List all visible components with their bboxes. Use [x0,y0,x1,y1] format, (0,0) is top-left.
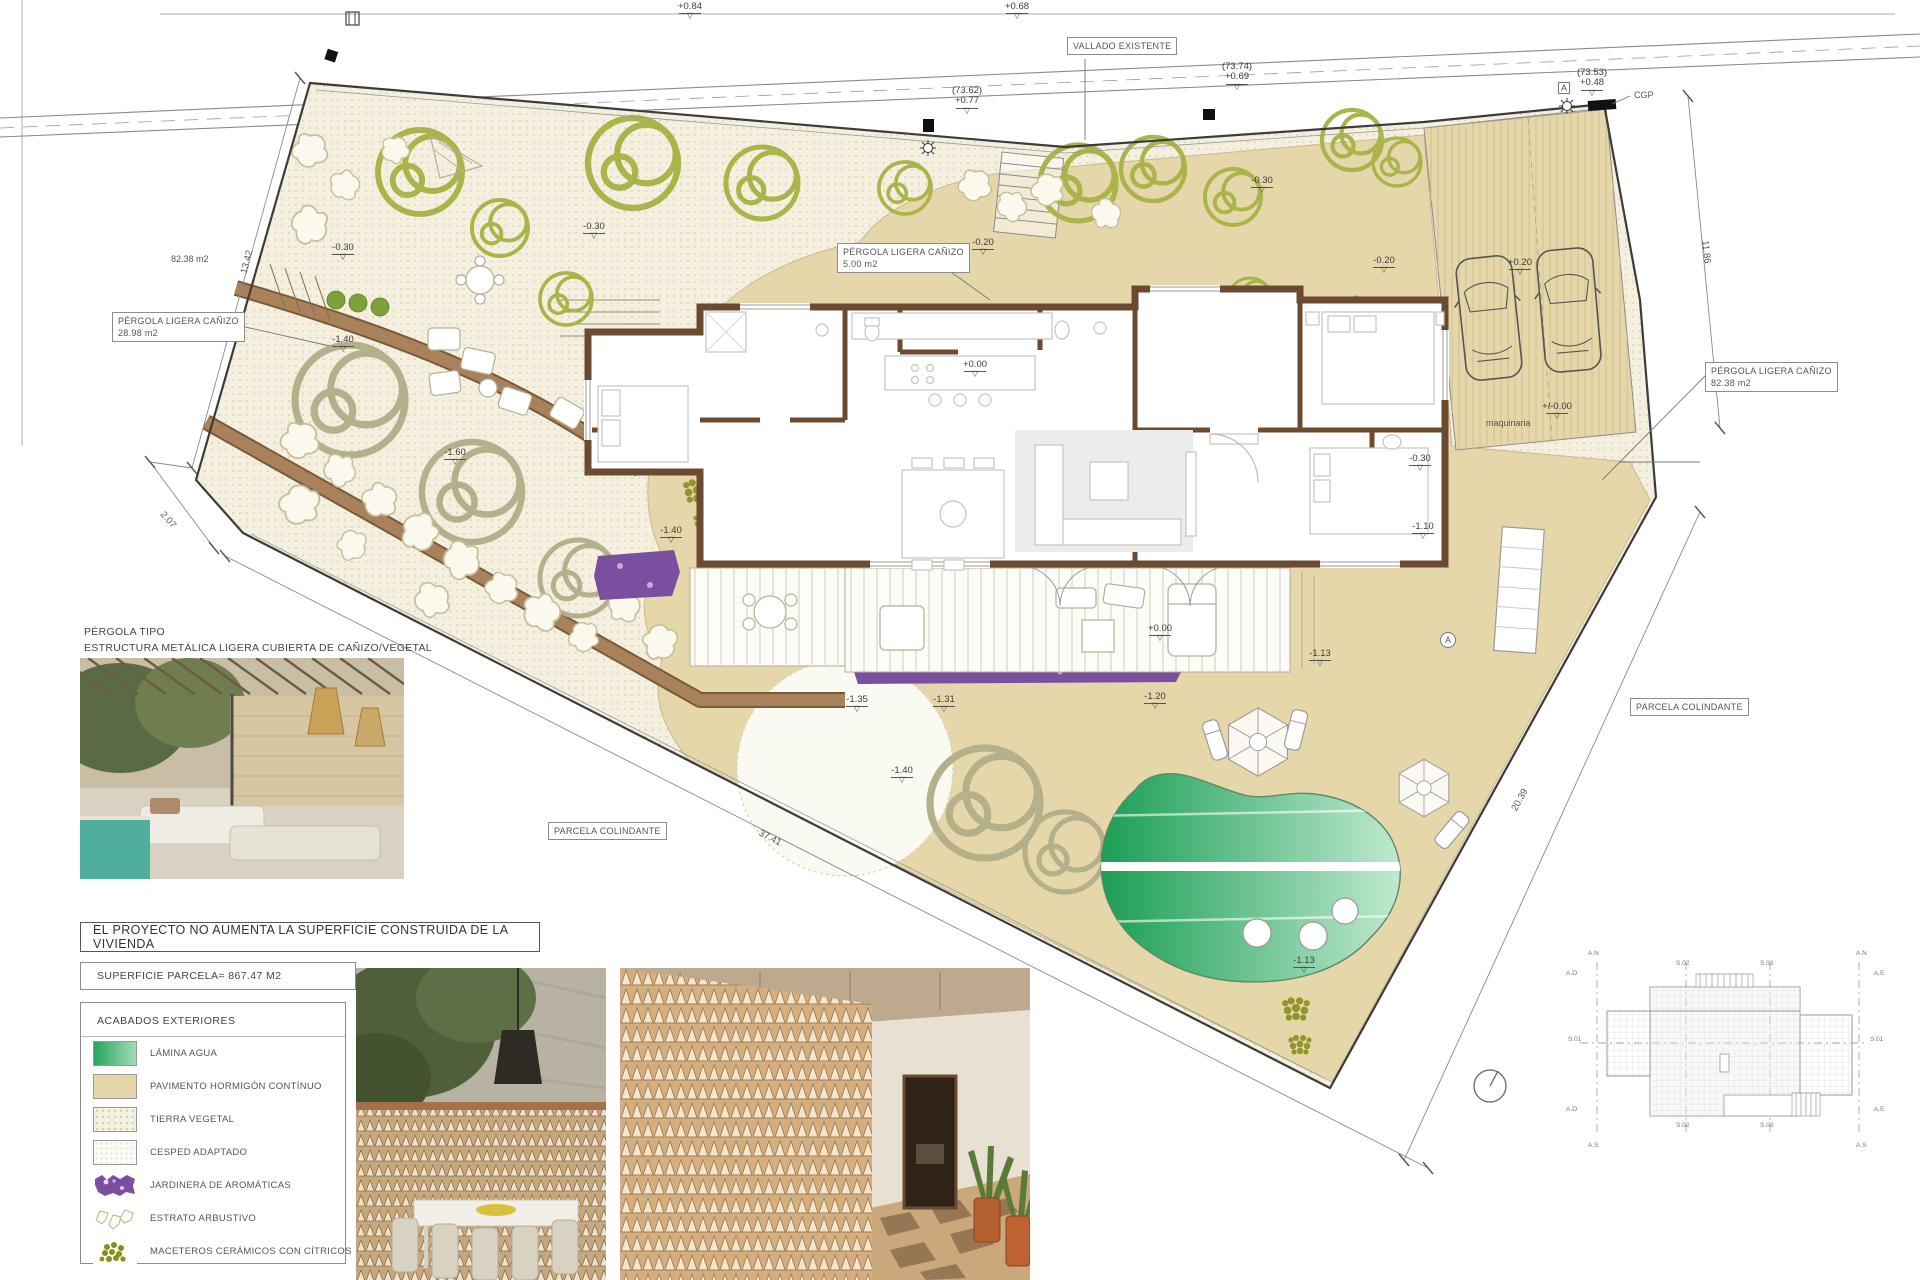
shrubs [275,133,1423,667]
roof-section-marker: A.O [1566,1106,1577,1113]
legend-label: TIERRA VEGETAL [150,1114,234,1125]
roof-section-marker: A.E [1874,970,1884,977]
level-marker: (73.62)+0.77▽ [952,86,982,116]
legend-label: ESTRATO ARBUSTIVO [150,1213,256,1224]
level-marker: -1.13▽ [1309,649,1331,668]
level-marker: -0.20▽ [1373,256,1395,275]
level-marker: -1.40▽ [660,526,682,545]
legend-label: JARDINERA DE AROMÁTICAS [150,1180,291,1191]
celosia-table-photo [356,968,606,1280]
roof-section-marker: A.N [1588,950,1599,957]
roof-section-marker: A.E [1874,1106,1884,1113]
level-marker: +0.00▽ [1148,624,1172,643]
parcel-area-note: SUPERFICIE PARCELA= 867.47 M2 [80,962,356,990]
boxed-label: PÉRGOLA LIGERA CAÑIZO28.98 m2 [112,312,245,342]
legend-item-cesped: CESPED ADAPTADO [81,1136,345,1169]
roof-section-marker: S.03 [1760,960,1773,967]
plan-text: A [1440,632,1456,648]
plan-text: 82.38 m2 [171,254,209,264]
level-marker: -1.60▽ [444,448,466,467]
plan-text: CGP [1634,90,1654,100]
legend-title: ACABADOS EXTERIORES [81,1003,345,1037]
legend-item-tierra: TIERRA VEGETAL [81,1103,345,1136]
level-marker: (73.53)+0.48▽ [1577,68,1607,98]
level-marker: +0.84▽ [678,2,702,21]
lawn-circle [737,660,953,876]
legend-swatch-pavimento [93,1074,137,1099]
level-marker: -0.30▽ [1409,454,1431,473]
boxed-label: PARCELA COLINDANTE [548,822,667,840]
legend-items: LÁMINA AGUAPAVIMENTO HORMIGÓN CONTÍNUOTI… [81,1037,345,1268]
jardineras [594,550,1182,684]
pavement [644,135,1650,1082]
plan-text: A [1558,82,1570,94]
level-marker: -0.30▽ [1251,176,1273,195]
legend-label: MACETEROS CERÁMICOS CON CÍTRICOS [150,1246,352,1257]
level-marker: +0.68▽ [1005,2,1029,21]
legend-label: PAVIMENTO HORMIGÓN CONTÍNUO [150,1081,322,1092]
roof-section-marker: S.03 [1760,1122,1773,1129]
legend-label: CESPED ADAPTADO [150,1147,247,1158]
parking-area [1424,108,1636,450]
pergola-caption-line1: PÉRGOLA TIPO [84,624,432,640]
level-marker: -1.13▽ [1293,956,1315,975]
pool-furniture [1201,294,1471,850]
roof-section-marker: A.N [1856,950,1867,957]
legend-swatch-citricos [93,1239,137,1264]
pergola-caption: PÉRGOLA TIPO ESTRUCTURA METÁLICA LIGERA … [84,624,432,657]
level-marker: -1.10▽ [1412,522,1434,541]
legend-swatch-cesped [93,1140,137,1165]
pool [1080,774,1410,982]
roof-section-marker: A.O [1566,970,1577,977]
north-symbol [1474,1070,1506,1102]
project-note-text: EL PROYECTO NO AUMENTA LA SUPERFICIE CON… [93,923,539,951]
street-light [1559,98,1575,114]
boxed-label: PÉRGOLA LIGERA CAÑIZO5.00 m2 [837,243,970,273]
roof-section-marker: S.01 [1870,1036,1883,1043]
roof-section-marker: S.01 [1568,1036,1581,1043]
roof-section-marker: A.S [1588,1142,1598,1149]
dimension-label: 11.86 [1699,240,1712,264]
level-marker: +/-0.00▽ [1542,402,1572,421]
legend-item-agua: LÁMINA AGUA [81,1037,345,1070]
level-marker: -0.30▽ [583,222,605,241]
pergola-reference-photo [80,658,404,879]
level-marker: (73.74)+0.69▽ [1222,62,1252,92]
legend-swatch-tierra [93,1107,137,1132]
legend-item-jardinera: JARDINERA DE AROMÁTICAS [81,1169,345,1202]
windows [584,285,1449,568]
pergola-table [1494,527,1545,654]
boxed-label: PÉRGOLA LIGERA CAÑIZO82.38 m2 [1705,362,1838,392]
dimension-label: 13.42 [239,249,256,275]
legend-label: LÁMINA AGUA [150,1048,217,1059]
pergola-caption-line2: ESTRUCTURA METÁLICA LIGERA CUBIERTA DE C… [84,640,432,656]
legend: ACABADOS EXTERIORES LÁMINA AGUAPAVIMENTO… [80,1002,346,1264]
boxed-label: VALLADO EXISTENTE [1067,37,1177,55]
street-light [920,140,936,156]
dimension-label: 20.39 [1509,787,1530,813]
vegetation [275,110,1423,1055]
legend-item-citricos: MACETEROS CERÁMICOS CON CÍTRICOS [81,1235,345,1268]
level-marker: -0.30▽ [332,243,354,262]
parcel-area-text: SUPERFICIE PARCELA= 867.47 M2 [97,970,281,982]
leader-lines [232,59,1705,480]
street-elements [324,12,1616,156]
legend-swatch-jardinera [93,1173,137,1198]
level-marker: +0.20▽ [1508,258,1532,277]
legend-item-pavimento: PAVIMENTO HORMIGÓN CONTÍNUO [81,1070,345,1103]
legend-item-arbustivo: ESTRATO ARBUSTIVO [81,1202,345,1235]
house-plan [584,285,1449,570]
legend-swatch-agua [93,1041,137,1066]
level-marker: -1.40▽ [332,335,354,354]
project-note: EL PROYECTO NO AUMENTA LA SUPERFICIE CON… [80,922,540,952]
garden-furniture [428,135,585,430]
level-marker: -0.20▽ [972,238,994,257]
celosia-corridor-photo [620,968,1030,1280]
entrance-stairs [994,152,1064,238]
legend-swatch-arbustivo [93,1206,137,1231]
citrus-planters [683,479,711,503]
boxed-label: PARCELA COLINDANTE [1630,698,1749,716]
level-marker: -1.40▽ [891,766,913,785]
sheet-frame [22,0,1895,446]
furniture [598,312,1444,570]
plan-text: maquinaria [1486,418,1531,428]
level-marker: -1.35▽ [846,695,868,714]
roof-section-marker: S.02 [1676,1122,1689,1129]
level-marker: +0.00▽ [963,360,987,379]
site-plan-sheet: +0.84▽+0.68▽(73.62)+0.77▽(73.74)+0.69▽(7… [0,0,1920,1280]
dimension-label: 37.41 [757,828,783,849]
terrace [690,566,1314,672]
roof-section-marker: A.S [1856,1142,1866,1149]
road [0,34,1920,137]
car-1 [1450,254,1528,382]
level-marker: -1.20▽ [1144,692,1166,711]
roof-plan [1580,962,1868,1132]
dimension-label: 2.07 [158,509,178,530]
roof-section-marker: S.02 [1676,960,1689,967]
car-2 [1531,246,1607,373]
level-marker: -1.31▽ [933,695,955,714]
